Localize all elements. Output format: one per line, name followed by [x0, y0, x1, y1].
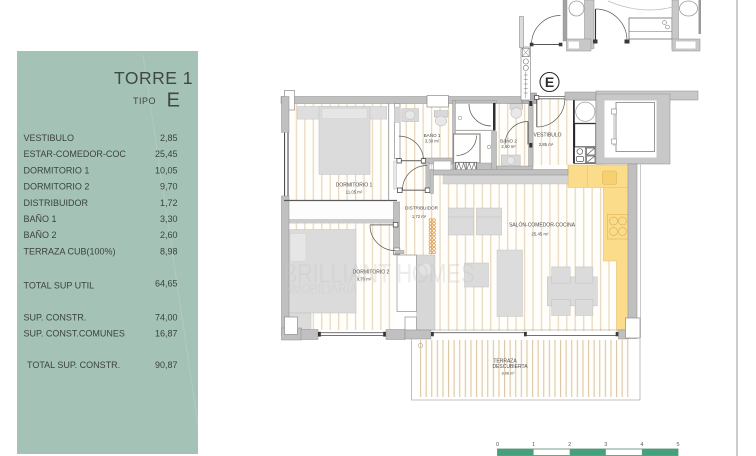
svg-text:TIPO: TIPO	[133, 96, 156, 106]
svg-text:1: 1	[532, 442, 535, 448]
svg-text:64,65: 64,65	[155, 279, 178, 289]
svg-text:INMOBILIARIA: INMOBILIARIA	[281, 281, 358, 297]
svg-text:25,45 m²: 25,45 m²	[532, 232, 550, 237]
svg-text:BAÑO 1: BAÑO 1	[424, 132, 441, 138]
svg-text:11,05 m²: 11,05 m²	[346, 190, 363, 195]
svg-text:2,60: 2,60	[160, 230, 178, 240]
svg-text:E: E	[545, 74, 554, 90]
svg-text:10,05: 10,05	[155, 165, 178, 175]
svg-text:1,72: 1,72	[160, 198, 178, 208]
svg-text:E: E	[167, 90, 180, 112]
svg-text:ESTAR-COMEDOR-COC: ESTAR-COMEDOR-COC	[24, 149, 127, 159]
svg-text:3,30 m²: 3,30 m²	[425, 139, 440, 144]
svg-text:3,30: 3,30	[160, 214, 178, 224]
svg-text:9,70: 9,70	[160, 182, 178, 192]
svg-text:1,72 m²: 1,72 m²	[412, 214, 427, 219]
svg-text:SUP. CONSTR.: SUP. CONSTR.	[24, 312, 87, 322]
svg-text:5: 5	[676, 442, 679, 448]
svg-text:SUP. CONST.COMUNES: SUP. CONST.COMUNES	[24, 328, 125, 338]
svg-text:DORMITORIO 2: DORMITORIO 2	[24, 182, 90, 192]
svg-text:2,60 m²: 2,60 m²	[501, 144, 516, 149]
svg-text:TOTAL SUP UTIL: TOTAL SUP UTIL	[24, 280, 95, 290]
svg-text:DORMITORIO 1: DORMITORIO 1	[336, 183, 373, 189]
svg-text:SALÓN-COMEDOR-COCINA: SALÓN-COMEDOR-COCINA	[509, 222, 576, 229]
svg-text:DESCUBIERTA: DESCUBIERTA	[492, 364, 528, 370]
svg-text:2,85 m²: 2,85 m²	[539, 142, 554, 147]
svg-text:8,98: 8,98	[160, 246, 178, 256]
svg-text:BAÑO 2: BAÑO 2	[24, 230, 57, 240]
svg-text:TOTAL SUP. CONSTR.: TOTAL SUP. CONSTR.	[27, 360, 120, 370]
svg-text:2: 2	[568, 442, 571, 448]
svg-text:16,87: 16,87	[155, 328, 178, 338]
svg-text:BAÑO 2: BAÑO 2	[500, 138, 517, 144]
svg-text:VESTIBULO: VESTIBULO	[24, 133, 75, 143]
svg-text:TORRE 1: TORRE 1	[114, 68, 193, 88]
svg-text:25,45: 25,45	[155, 149, 178, 159]
svg-text:90,87: 90,87	[155, 360, 178, 370]
svg-text:TERRAZA CUB(100%): TERRAZA CUB(100%)	[24, 246, 116, 256]
svg-text:0: 0	[496, 442, 499, 448]
svg-text:DORMITORIO 1: DORMITORIO 1	[24, 165, 90, 175]
svg-text:DISTRIBUIDOR: DISTRIBUIDOR	[24, 198, 89, 208]
svg-text:4: 4	[640, 442, 643, 448]
svg-text:74,00: 74,00	[155, 312, 178, 322]
svg-text:3: 3	[604, 442, 607, 448]
svg-text:DISTRIBUIDOR: DISTRIBUIDOR	[405, 206, 439, 211]
svg-text:8,98 m²: 8,98 m²	[502, 372, 516, 376]
svg-text:2,85: 2,85	[160, 133, 178, 143]
svg-text:VESTIBULO: VESTIBULO	[533, 133, 561, 139]
svg-text:BAÑO 1: BAÑO 1	[24, 214, 57, 224]
